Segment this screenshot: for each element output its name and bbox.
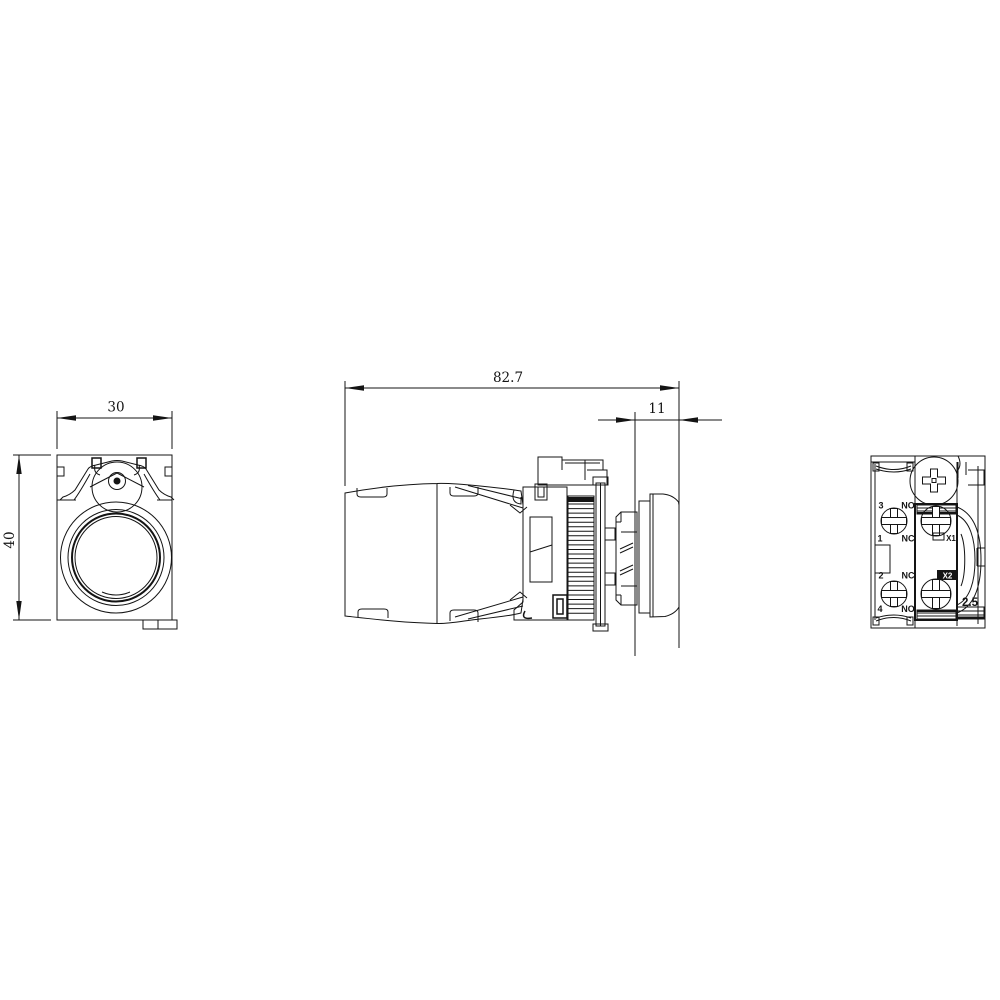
dim-height-label: 40 xyxy=(2,531,18,548)
screw-slot-horizontal xyxy=(882,518,907,525)
side-collar-outline xyxy=(568,496,594,620)
front-face-mark xyxy=(102,592,130,595)
rear-right-clamp-bar xyxy=(957,617,984,620)
contact-no-bottom-label: NO xyxy=(901,604,915,614)
side-collar-top-band xyxy=(568,497,594,502)
side-button-cap xyxy=(639,494,679,617)
lamp-x2-label: X2 xyxy=(943,572,953,581)
side-view xyxy=(345,457,679,631)
side-flange-plate xyxy=(593,477,608,631)
side-latch-bottom-detail xyxy=(524,595,567,618)
rear-center-screw xyxy=(910,457,958,505)
front-view xyxy=(57,455,177,629)
contact-no-top-label: NO xyxy=(901,501,915,511)
side-body-outline xyxy=(345,483,523,623)
dim-cap-length-label: 11 xyxy=(648,401,665,417)
rear-screw-lamp-top xyxy=(921,506,951,536)
side-connector-blocks xyxy=(605,528,615,585)
collar-ribs xyxy=(569,504,594,613)
rear-screw-lamp-bottom xyxy=(921,579,951,609)
screw-slot-horizontal xyxy=(922,518,951,525)
front-screw-dot xyxy=(114,478,121,485)
rear-view: 3 NO 1 NC 2 NC 4 NO X1 X2 2.5 xyxy=(871,456,985,628)
contact-nc-bottom-label: NC xyxy=(902,571,915,581)
side-mount-ring xyxy=(616,512,637,605)
pushbutton-dimensional-drawing: 3 NO 1 NC 2 NC 4 NO X1 X2 2.5 30 40 82.7… xyxy=(0,0,1000,1000)
front-latch-right xyxy=(137,458,146,468)
terminal-3-label: 3 xyxy=(878,501,883,511)
screw-slot-horizontal xyxy=(882,591,907,598)
side-body-notches xyxy=(357,487,478,622)
terminal-4-label: 4 xyxy=(877,604,882,614)
dim-total-length-label: 82.7 xyxy=(493,370,523,386)
terminal-1-label: 1 xyxy=(877,534,882,544)
lamp-x1-label: X1 xyxy=(946,534,956,543)
dim-82-7-lines xyxy=(345,381,679,648)
front-bezel-ring-3 xyxy=(72,514,160,602)
dim-width-label: 30 xyxy=(107,400,124,416)
dim-40-lines xyxy=(13,455,51,620)
contact-nc-top-label: NC xyxy=(902,534,915,544)
side-top-bracket xyxy=(538,457,607,485)
front-latch-left xyxy=(92,458,101,468)
rear-lamp-clamp-bottom-bar xyxy=(917,610,956,612)
screw-slot-horizontal xyxy=(922,591,951,598)
side-holder-body xyxy=(514,487,567,620)
front-bezel-ring-2 xyxy=(68,510,164,606)
clamp-capacity-label: 2.5 xyxy=(962,597,979,609)
rear-center-screw-core xyxy=(932,479,936,483)
front-bezel-outer-ring xyxy=(61,502,172,613)
front-button-face xyxy=(75,517,157,599)
dim-11-lines xyxy=(598,412,722,656)
technical-drawing-sheet: 3 NO 1 NC 2 NC 4 NO X1 X2 2.5 30 40 82.7… xyxy=(0,0,1000,1000)
rear-center-screw-cross xyxy=(923,469,946,492)
side-neck-latches xyxy=(455,486,527,620)
terminal-2-label: 2 xyxy=(878,571,883,581)
rear-screw-contact-top xyxy=(881,508,907,534)
